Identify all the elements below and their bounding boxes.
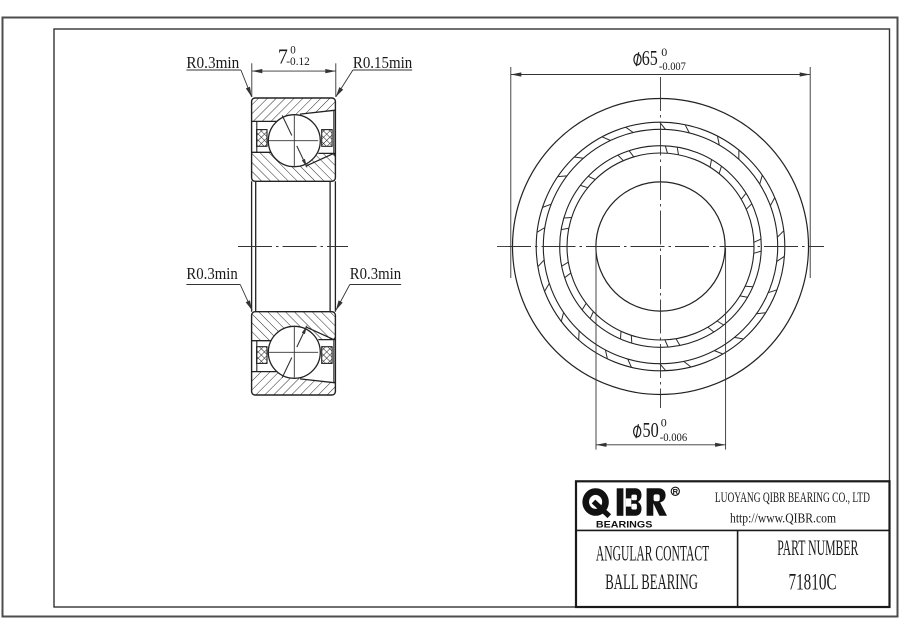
svg-text:R0.3min: R0.3min: [186, 53, 239, 72]
svg-text:ANGULAR CONTACT: ANGULAR CONTACT: [596, 541, 709, 566]
svg-text:LUOYANG QIBR BEARING CO., LTD: LUOYANG QIBR BEARING CO., LTD: [715, 490, 870, 506]
svg-text:R0.3min: R0.3min: [350, 264, 401, 283]
svg-text:65: 65: [642, 46, 658, 70]
svg-text:http://www.QIBR.com: http://www.QIBR.com: [730, 511, 836, 526]
svg-text:50: 50: [643, 418, 659, 442]
svg-text:-0.12: -0.12: [286, 54, 310, 68]
svg-text:R: R: [673, 487, 679, 496]
svg-text:R0.3min: R0.3min: [186, 264, 237, 283]
svg-text:0: 0: [661, 45, 667, 59]
svg-text:BALL BEARING: BALL BEARING: [605, 569, 698, 594]
svg-text:-0.006: -0.006: [660, 430, 688, 444]
svg-text:0: 0: [661, 415, 667, 429]
svg-text:R0.15min: R0.15min: [353, 53, 412, 72]
svg-text:PART NUMBER: PART NUMBER: [777, 535, 858, 560]
svg-text:-0.007: -0.007: [659, 59, 686, 73]
svg-text:71810C: 71810C: [789, 570, 837, 595]
svg-text:BEARINGS: BEARINGS: [596, 519, 653, 529]
